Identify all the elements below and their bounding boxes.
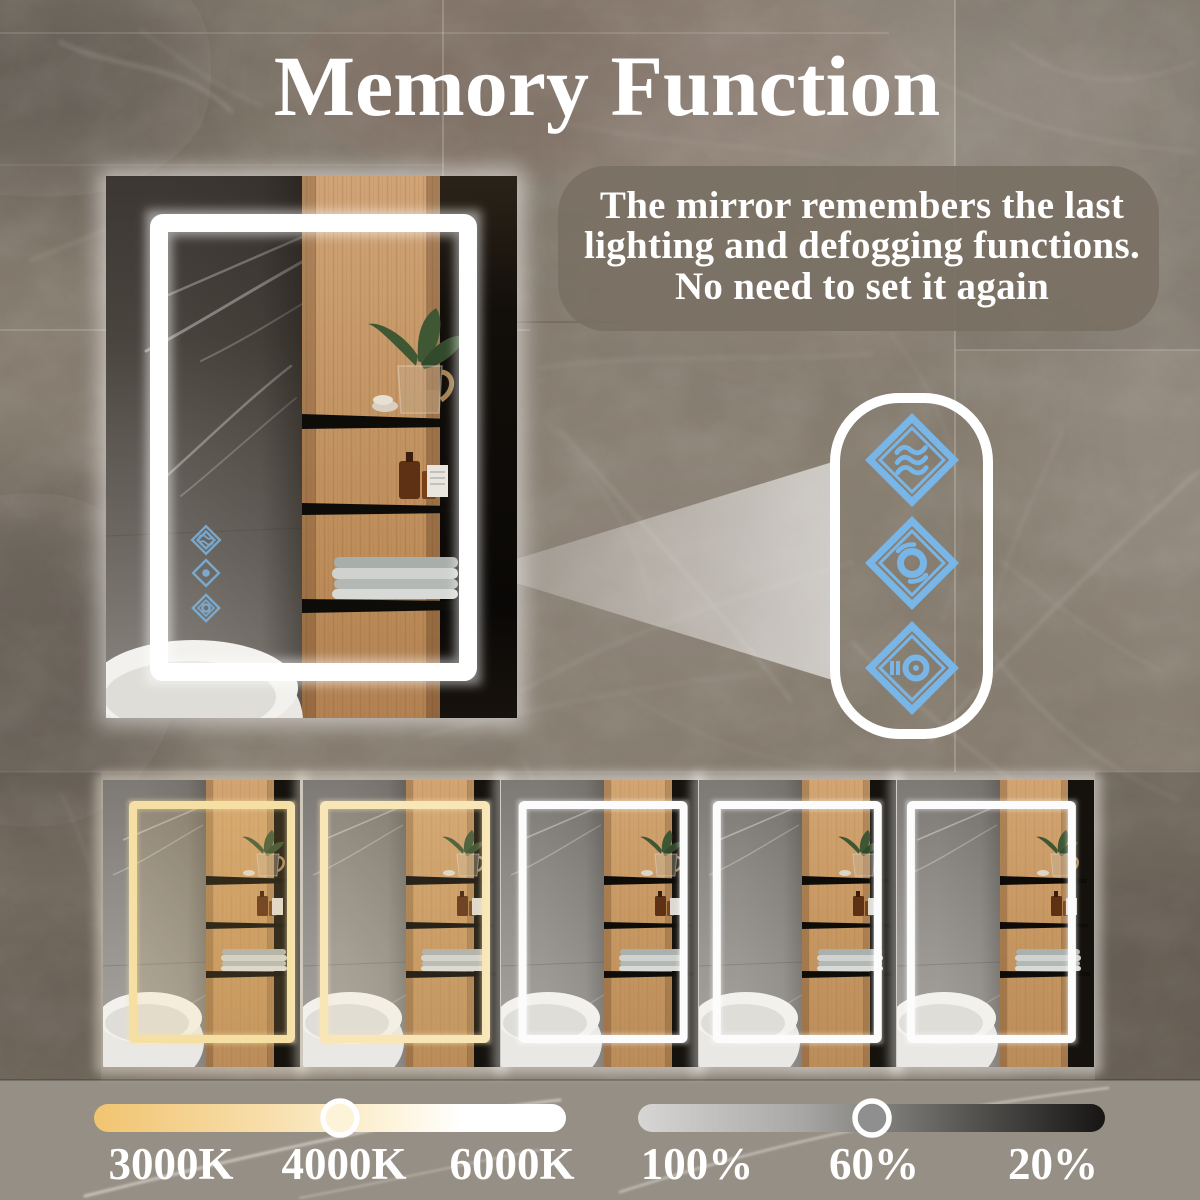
svg-text:4000K: 4000K [281,1139,406,1189]
svg-text:100%: 100% [641,1139,754,1189]
svg-text:20%: 20% [1008,1139,1098,1189]
svg-text:3000K: 3000K [108,1139,233,1189]
svg-text:No need to set it again: No need to set it again [675,265,1049,308]
svg-text:6000K: 6000K [449,1139,574,1189]
svg-text:lighting and defogging functio: lighting and defogging functions. [584,224,1140,267]
svg-text:60%: 60% [829,1139,919,1189]
svg-text:Memory Function: Memory Function [274,38,940,134]
svg-text:The mirror remembers the last: The mirror remembers the last [600,184,1124,227]
